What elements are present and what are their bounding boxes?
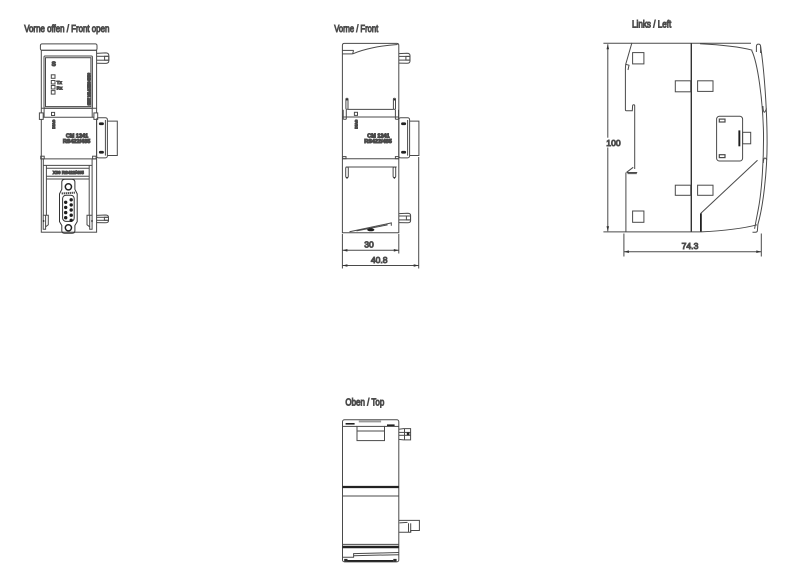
svg-text:6ES7 241-1CH30-0XB0: 6ES7 241-1CH30-0XB0: [87, 73, 91, 106]
svg-text:Oben / Top: Oben / Top: [345, 398, 384, 409]
svg-text:RS422/485: RS422/485: [63, 139, 91, 145]
svg-text:74.3: 74.3: [682, 241, 699, 251]
svg-text:Vorne offen / Front open: Vorne offen / Front open: [24, 24, 109, 35]
svg-text:30: 30: [364, 240, 374, 250]
svg-text:Rx: Rx: [57, 85, 63, 90]
svg-text:100: 100: [606, 138, 621, 148]
svg-text:DIAG: DIAG: [354, 120, 358, 129]
svg-text:40.8: 40.8: [371, 255, 388, 265]
svg-text:RS422/485: RS422/485: [364, 139, 392, 145]
svg-text:Vorne / Front: Vorne / Front: [334, 24, 378, 35]
svg-text:Links / Left: Links / Left: [632, 20, 671, 31]
svg-text:DIAG: DIAG: [52, 120, 56, 129]
svg-text:X30 RS422/485: X30 RS422/485: [53, 170, 85, 175]
svg-text:S: S: [52, 61, 57, 68]
